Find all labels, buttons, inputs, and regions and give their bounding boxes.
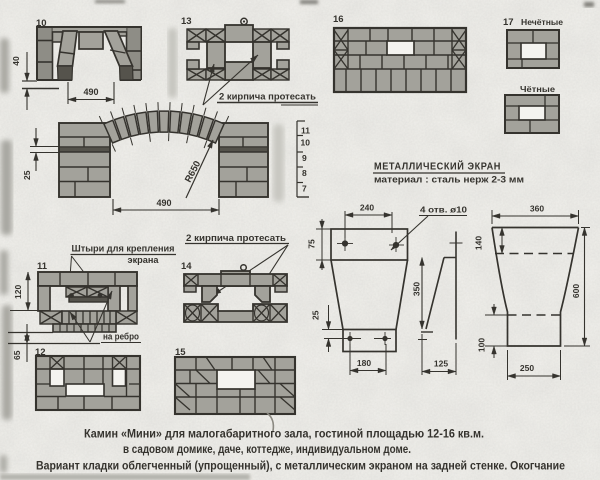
- svg-text:125: 125: [434, 359, 448, 369]
- svg-text:25: 25: [22, 170, 32, 180]
- svg-text:240: 240: [360, 203, 374, 213]
- svg-text:25: 25: [311, 310, 321, 320]
- svg-text:Камин «Мини» для малогабаритно: Камин «Мини» для малогабаритного зала, г…: [84, 427, 484, 441]
- svg-text:в садовом домике, даче, коттед: в садовом домике, даче, коттедже, индиви…: [123, 442, 411, 456]
- svg-text:9: 9: [302, 153, 307, 163]
- svg-text:7: 7: [302, 184, 307, 194]
- svg-text:2 кирпича протесать: 2 кирпича протесать: [186, 233, 286, 244]
- svg-text:11: 11: [301, 126, 310, 136]
- svg-text:120: 120: [13, 285, 23, 299]
- svg-text:МЕТАЛЛИЧЕСКИЙ ЭКРАН: МЕТАЛЛИЧЕСКИЙ ЭКРАН: [374, 161, 501, 173]
- svg-text:2 кирпича протесать: 2 кирпича протесать: [219, 92, 316, 103]
- svg-text:75: 75: [307, 239, 317, 249]
- svg-text:490: 490: [83, 87, 98, 97]
- svg-text:16: 16: [333, 14, 344, 25]
- svg-text:250: 250: [520, 363, 534, 373]
- svg-text:14: 14: [181, 261, 192, 272]
- svg-text:экрана: экрана: [128, 255, 159, 265]
- svg-text:материал : сталь нерж 2-3 мм: материал : сталь нерж 2-3 мм: [374, 175, 524, 185]
- svg-text:4 отв. ø10: 4 отв. ø10: [420, 205, 467, 215]
- svg-text:11: 11: [37, 261, 48, 272]
- svg-text:8: 8: [302, 168, 307, 178]
- svg-text:10: 10: [301, 138, 311, 148]
- svg-text:40: 40: [11, 56, 21, 66]
- svg-text:Чётные: Чётные: [520, 84, 555, 94]
- svg-text:140: 140: [474, 236, 484, 250]
- svg-text:180: 180: [357, 358, 371, 368]
- svg-text:350: 350: [412, 282, 422, 296]
- svg-text:Штыри для крепления: Штыри для крепления: [72, 244, 175, 254]
- svg-text:17: 17: [503, 17, 514, 28]
- svg-text:490: 490: [156, 198, 171, 208]
- svg-text:65: 65: [12, 350, 22, 360]
- svg-text:360: 360: [530, 204, 544, 214]
- svg-text:на ребро: на ребро: [103, 332, 140, 342]
- svg-text:Нечётные: Нечётные: [521, 17, 563, 27]
- svg-text:Вариант кладки облегченный (уп: Вариант кладки облегченный (упрощенный),…: [36, 459, 565, 473]
- svg-text:13: 13: [181, 16, 192, 27]
- svg-text:600: 600: [571, 284, 581, 298]
- svg-text:100: 100: [477, 338, 487, 352]
